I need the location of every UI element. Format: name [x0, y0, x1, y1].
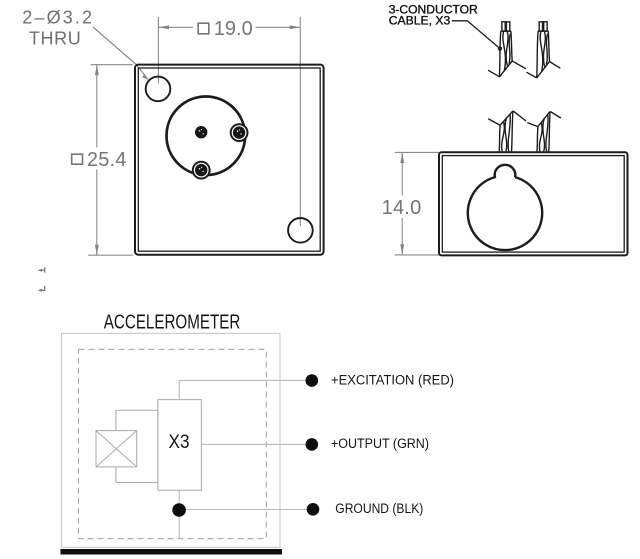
svg-text:+OUTPUT (GRN): +OUTPUT (GRN) [331, 436, 429, 451]
svg-text:25.4: 25.4 [87, 149, 127, 171]
svg-text:THRU: THRU [29, 28, 81, 48]
svg-text:19.0: 19.0 [214, 18, 253, 40]
svg-text:14.0: 14.0 [382, 197, 422, 219]
svg-text:CABLE, X3: CABLE, X3 [389, 14, 451, 28]
svg-text:+EXCITATION (RED): +EXCITATION (RED) [331, 372, 454, 387]
svg-text:GROUND (BLK): GROUND (BLK) [335, 501, 423, 516]
svg-text:X3: X3 [169, 432, 190, 453]
svg-text:ACCELEROMETER: ACCELEROMETER [104, 311, 241, 333]
